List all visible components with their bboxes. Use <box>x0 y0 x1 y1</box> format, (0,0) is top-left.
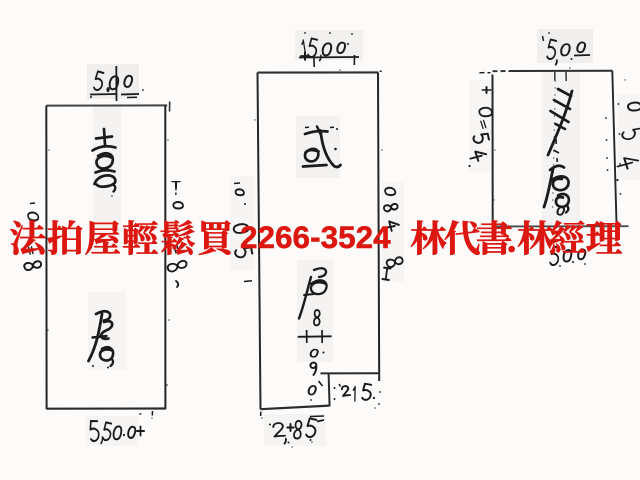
svg-text:2266-3524: 2266-3524 <box>240 219 391 255</box>
